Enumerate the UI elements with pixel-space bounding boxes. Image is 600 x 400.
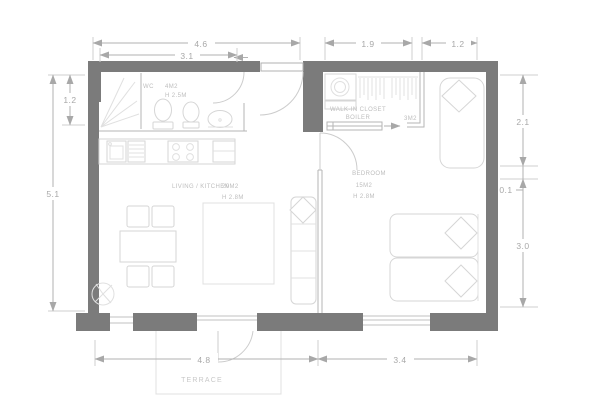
- svg-text:5.1: 5.1: [46, 189, 59, 199]
- svg-text:4.8: 4.8: [197, 355, 210, 365]
- washing-machine: [325, 74, 356, 100]
- wall-right: [486, 61, 498, 331]
- bedroom-label: BEDROOM: [352, 171, 386, 177]
- entrance-door-leaf: [261, 63, 303, 71]
- dining-set: [120, 206, 176, 287]
- room-wc: WC 4M2 H 2.5M: [101, 78, 233, 129]
- wc-door-swing: [213, 72, 244, 103]
- living-height: H 2.8M: [222, 195, 244, 201]
- dimensions-left: 5.1 1.2: [42, 75, 85, 311]
- bedroom-area: 15M2: [356, 183, 373, 189]
- bedroom-door-swing: [320, 133, 357, 170]
- terrace-door-glazing: [197, 316, 257, 320]
- wall-left-notch: [88, 72, 101, 102]
- room-living: LIVING / KITCHEN 20M2 H 2.8M: [92, 184, 316, 305]
- closet-area: 3M2: [404, 116, 417, 122]
- closet-sub-label: BOILER: [346, 115, 371, 121]
- kitchen: [99, 139, 235, 164]
- wall-top-right: [303, 61, 497, 72]
- wash-basin: [208, 111, 233, 128]
- window-living-small: [110, 317, 133, 323]
- chair: [152, 206, 174, 227]
- closet-sliding-door: [327, 122, 400, 130]
- shower: [101, 78, 139, 127]
- svg-text:3.1: 3.1: [180, 51, 193, 61]
- wc-label: WC: [143, 84, 154, 90]
- wall-top-left: [88, 61, 260, 72]
- wc-door: [213, 72, 244, 103]
- dim-top-closet: 1.9: [325, 37, 412, 49]
- bedroom-door: [320, 133, 357, 170]
- svg-text:4.6: 4.6: [194, 39, 207, 49]
- walk-in-closet: WALK-IN CLOSET BOILER 3M2: [325, 74, 418, 122]
- dim-top-overall: 4.6: [93, 37, 300, 49]
- chair: [127, 206, 149, 227]
- dimensions-top: 4.6 3.1 1.9 1.2: [93, 37, 477, 62]
- dim-bottom-bedroom: 3.4: [318, 353, 477, 365]
- wall-entry-stub: [303, 61, 323, 132]
- bedroom-height: H 2.8M: [353, 194, 375, 200]
- entrance-door: [260, 63, 303, 115]
- svg-text:1.9: 1.9: [361, 39, 374, 49]
- dim-top-wc: 3.1: [100, 49, 237, 61]
- svg-text:3.0: 3.0: [516, 241, 529, 251]
- dim-right-bedroom: 3.0: [512, 179, 534, 307]
- wall-bottom-2: [257, 313, 363, 331]
- fridge: [213, 141, 235, 162]
- entrance-door-swing: [260, 72, 303, 115]
- terrace-door: [218, 331, 253, 362]
- dim-right-wall: 0.1: [499, 166, 523, 195]
- toilet: [153, 99, 173, 129]
- svg-text:1.2: 1.2: [451, 39, 464, 49]
- dim-right-closet: 2.1: [512, 75, 534, 166]
- wc-height: H 2.5M: [165, 93, 187, 99]
- terrace-label: TERRACE: [181, 377, 223, 384]
- svg-text:2.1: 2.1: [516, 117, 529, 127]
- dining-table: [120, 231, 176, 262]
- svg-text:3.4: 3.4: [393, 355, 406, 365]
- closet-label: WALK-IN CLOSET: [330, 107, 386, 113]
- dim-left-overall: 5.1: [42, 75, 64, 311]
- rug: [203, 203, 274, 284]
- living-bedroom-partition: [318, 170, 322, 313]
- wall-bottom-1: [133, 313, 197, 331]
- clothes-rail: [358, 77, 418, 100]
- dimensions-right: 2.1 0.1 3.0: [499, 75, 538, 307]
- dim-left-wc: 1.2: [59, 75, 81, 125]
- wc-area: 4M2: [165, 84, 178, 90]
- double-bed: [390, 214, 478, 301]
- terrace-door-swing: [218, 331, 253, 362]
- bidet: [183, 102, 199, 128]
- floor-plan-canvas: WC 4M2 H 2.5M: [0, 0, 600, 400]
- floor-plan-drawing: WC 4M2 H 2.5M: [0, 0, 600, 400]
- stove: [168, 141, 198, 162]
- dimensions-bottom: 4.8 3.4: [95, 340, 477, 366]
- dim-bottom-living: 4.8: [95, 353, 318, 365]
- living-label: LIVING / KITCHEN: [172, 184, 229, 190]
- living-area: 20M2: [222, 184, 239, 190]
- wall-bottom-corner-left: [76, 313, 110, 331]
- wall-bottom-3: [430, 313, 497, 331]
- svg-text:0.1: 0.1: [499, 185, 512, 195]
- chair: [152, 266, 174, 287]
- chaise: [440, 78, 484, 168]
- dishwasher: [128, 141, 145, 162]
- svg-text:1.2: 1.2: [63, 95, 76, 105]
- kitchen-sink: [107, 141, 126, 162]
- dim-top-entry: 1.2: [422, 37, 477, 49]
- chair: [127, 266, 149, 287]
- window-bedroom: [363, 316, 430, 325]
- sofa: [290, 197, 316, 304]
